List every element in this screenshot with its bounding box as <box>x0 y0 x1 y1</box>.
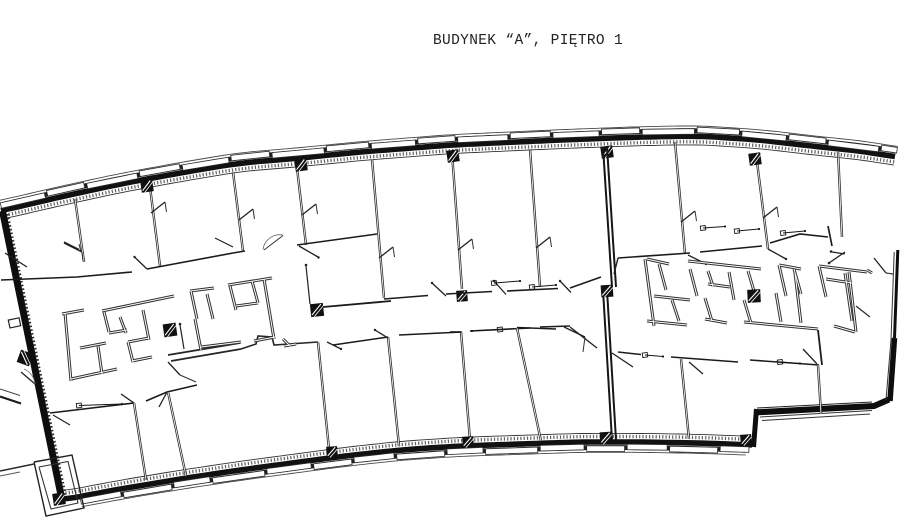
svg-text:BUDYNEK “A”, PIĘTRO 1: BUDYNEK “A”, PIĘTRO 1 <box>433 33 623 49</box>
